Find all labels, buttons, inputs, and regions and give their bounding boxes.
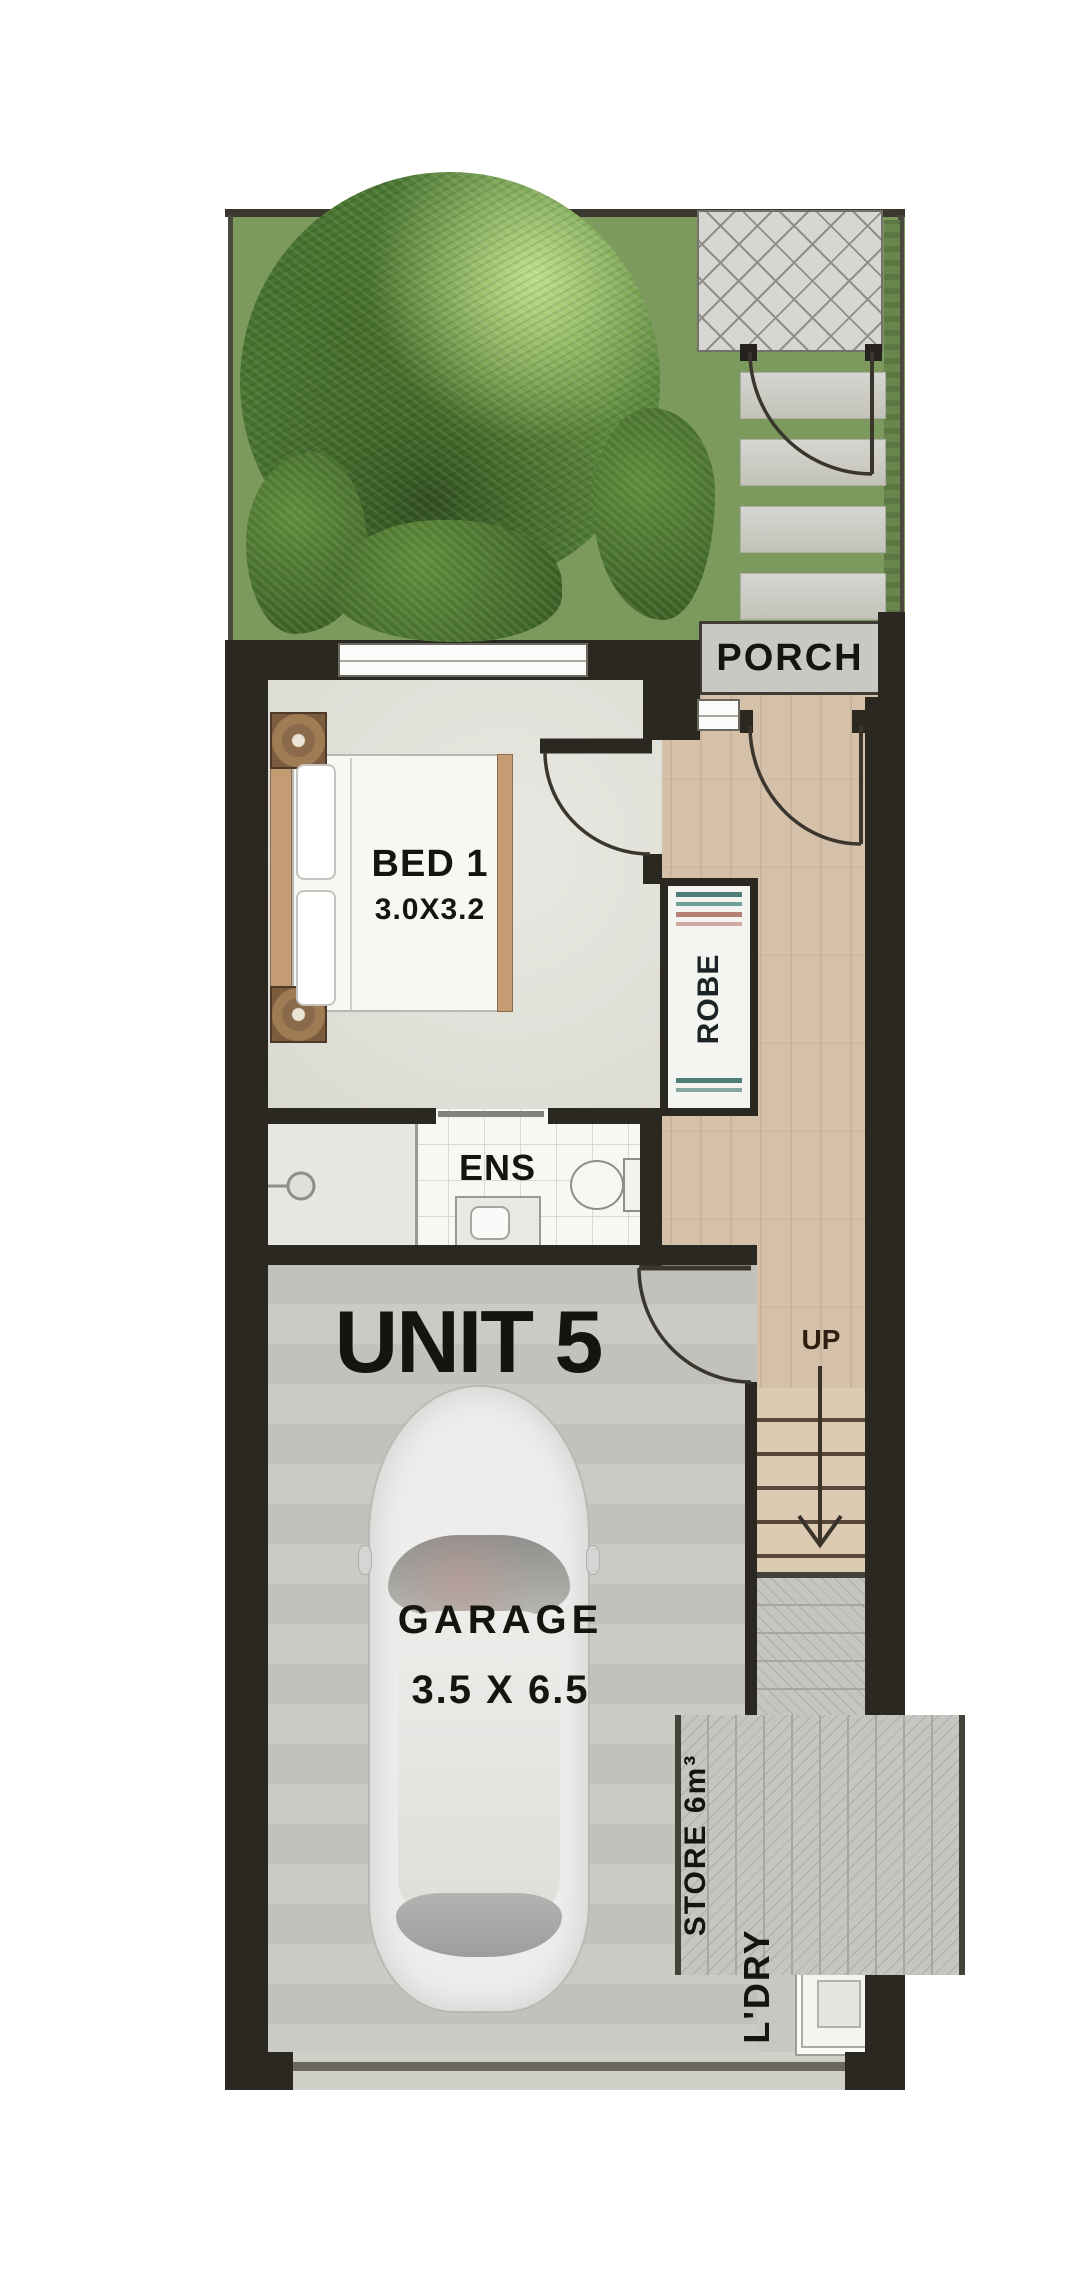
paved-entry-pad [697,210,883,352]
bedroom-window [338,643,588,677]
toilet-bowl [570,1160,624,1210]
entry-door-post-right [852,710,866,733]
stairs-up-label: UP [790,1326,852,1354]
nightstand [270,712,327,769]
exterior-wall-bottom-left [225,2052,293,2090]
garden-bush [330,520,562,642]
bed-headboard [270,752,292,1014]
stepping-stone [740,573,886,620]
store-label: STORE 6m³ [675,1715,965,1975]
ensuite-label: ENS [420,1150,575,1186]
garage-label: GARAGE [368,1600,633,1640]
entry-door-post-left [740,710,753,733]
robe-label: ROBE [694,914,724,1084]
bedroom-ensuite-wall [548,1108,643,1124]
gate-post-right [865,344,882,361]
car-roof [398,1611,560,1919]
porch-label: PORCH [716,639,863,677]
garden-hedge-strip [884,220,900,616]
window-mullion [699,715,738,717]
lot-boundary-left [228,215,233,647]
stepping-stone [740,439,886,486]
ensuite-sliding-door [438,1111,544,1117]
entry-sidelight-window [697,699,740,731]
gate-post-left [740,344,757,361]
robe-hanging-clothes [676,892,742,897]
laundry-trough-basin [817,1980,861,2028]
bed-duvet-fold [350,758,352,1010]
floorplan-canvas: PORCH [0,0,1080,2280]
garage-dimensions: 3.5 X 6.5 [368,1670,633,1710]
bedroom-label: BED 1 [330,845,530,883]
bedroom-hall-wall [643,854,662,884]
stepping-stone [740,506,886,553]
ensuite-garage-wall [268,1245,757,1265]
laundry-label: L'DRY [739,1901,775,2071]
exterior-wall-right-porch [878,612,905,697]
bedroom-dimensions: 3.0X3.2 [330,895,530,925]
exterior-wall-bottom-right [845,2052,905,2090]
robe-hanging-clothes [676,1088,742,1092]
car-side-mirror [586,1545,600,1575]
car-side-mirror [358,1545,372,1575]
robe-hanging-clothes [676,902,742,906]
ensuite-hall-wall [640,1108,662,1268]
porch-slab: PORCH [699,621,881,695]
exterior-wall-left [225,640,268,2090]
unit-title: UNIT 5 [263,1298,673,1386]
shower-base [268,1108,418,1263]
bed-footboard [497,754,513,1012]
vanity-basin [470,1206,510,1240]
window-mullion [340,660,586,662]
bedroom-ensuite-wall [268,1108,436,1124]
entry-corner-wall [643,640,700,740]
stepping-stone [740,372,886,419]
